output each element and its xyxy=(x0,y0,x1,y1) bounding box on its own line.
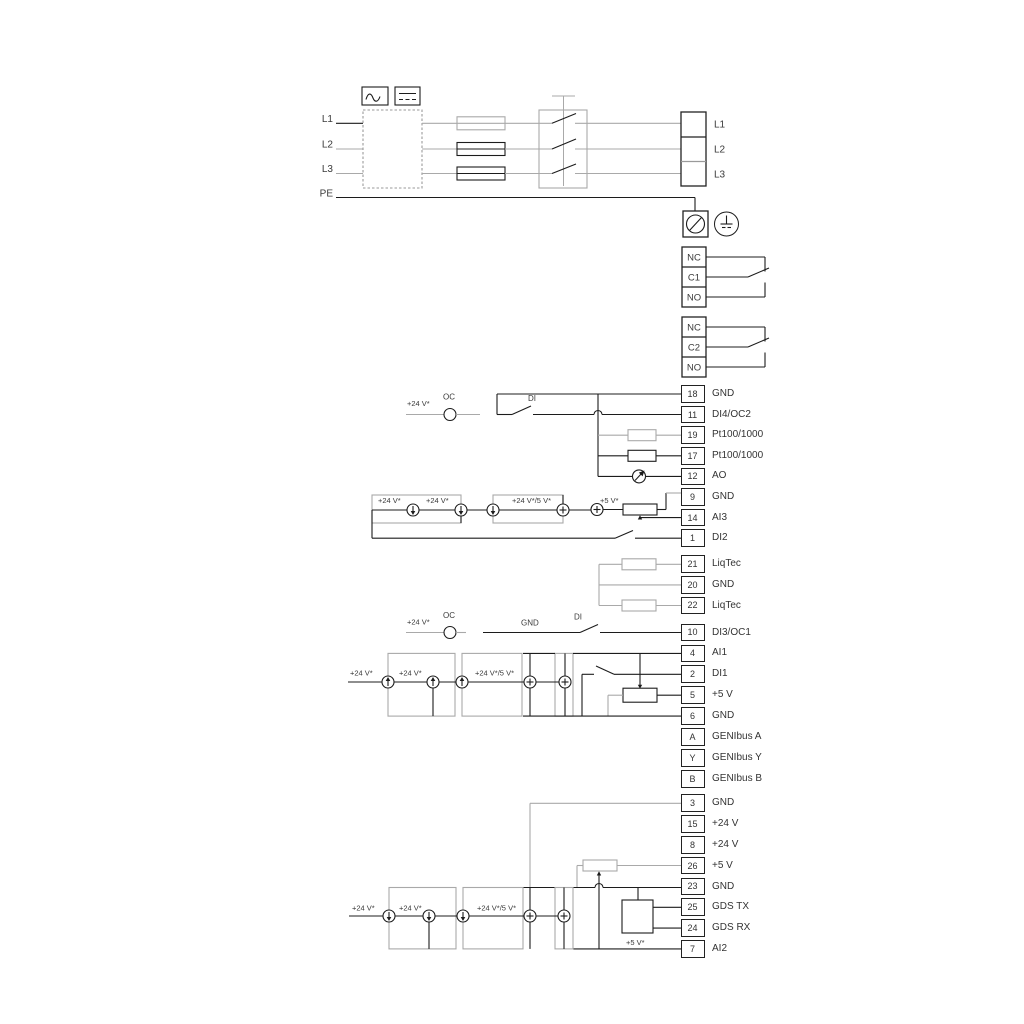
terminal-label: GND xyxy=(712,797,734,809)
terminal-cell: A xyxy=(681,728,705,746)
liqtec-sensor-symbol xyxy=(622,559,656,570)
dc-symbol-icon xyxy=(395,87,420,105)
terminal-label: LiqTec xyxy=(712,558,741,570)
fuse-symbol-l3 xyxy=(457,167,505,180)
plus24-label: +24 V* xyxy=(378,496,401,505)
gnd-label: GND xyxy=(521,619,539,628)
terminal-cell: 4 xyxy=(681,645,705,663)
plus24or5-label: +24 V*/5 V* xyxy=(512,496,551,505)
current-source-icon xyxy=(383,910,395,922)
terminal-label: AI1 xyxy=(712,647,727,659)
terminal-label: LiqTec xyxy=(712,600,741,612)
di-label: DI xyxy=(528,394,536,403)
terminal-cell: Y xyxy=(681,749,705,767)
terminal-cell: 2 xyxy=(681,665,705,683)
terminal-label: DI2 xyxy=(712,532,728,544)
relay2-nc: NC xyxy=(687,323,701,334)
terminal-number: 18 xyxy=(687,389,697,399)
terminal-cell: 15 xyxy=(681,815,705,833)
terminal-cell: B xyxy=(681,770,705,788)
terminal-label: GDS TX xyxy=(712,901,749,913)
terminal-label: Pt100/1000 xyxy=(712,429,763,441)
di1-switch-symbol xyxy=(582,666,681,716)
terminal-label: GENIbus A xyxy=(712,731,761,743)
phase-label-l1: L1 xyxy=(322,114,334,125)
plus5-label: +5 V* xyxy=(600,496,619,505)
relay1-block: NC C1 NO xyxy=(682,247,769,307)
terminal-cell: 14 xyxy=(681,509,705,527)
current-source-icon xyxy=(487,504,499,516)
plus24-label: +24 V* xyxy=(407,618,430,627)
ai2-option-boxes xyxy=(389,888,573,949)
terminal-number: 25 xyxy=(687,902,697,912)
terminal-cell: 21 xyxy=(681,555,705,573)
terminal-label: AI2 xyxy=(712,943,727,955)
terminal-cell: 20 xyxy=(681,576,705,594)
current-source-icon xyxy=(457,910,469,922)
plus24or5-label: +24 V*/5 V* xyxy=(477,904,516,913)
terminal-number: 10 xyxy=(687,627,697,637)
di4-switch-symbol xyxy=(497,406,594,415)
ai2-potentiometer-symbol xyxy=(577,860,681,949)
di-label: DI xyxy=(574,613,582,622)
terminal-number: 4 xyxy=(690,648,695,658)
terminal-number: 3 xyxy=(690,798,695,808)
terminal-label: DI1 xyxy=(712,668,728,680)
motor-terminal-block xyxy=(681,112,706,186)
plus24or5-label: +24 V*/5 V* xyxy=(475,669,514,678)
relay1-contact-symbol xyxy=(706,257,769,297)
terminal-cell: 10 xyxy=(681,624,705,642)
terminal-number: 2 xyxy=(690,669,695,679)
terminal-label: +24 V xyxy=(712,839,738,851)
terminal-number: 20 xyxy=(687,580,697,590)
terminal-number: 8 xyxy=(690,840,695,850)
voltage-source-icon xyxy=(524,676,536,688)
terminal-cell: 9 xyxy=(681,488,705,506)
terminal-number: 6 xyxy=(690,711,695,721)
current-source-icon xyxy=(423,910,435,922)
terminal-number: 9 xyxy=(690,492,695,502)
oc-label: OC xyxy=(443,611,455,620)
terminal-cell: 19 xyxy=(681,426,705,444)
terminal-cell: 7 xyxy=(681,940,705,958)
current-source-icon xyxy=(407,504,419,516)
io1-wiring: +24 V* OC DI xyxy=(372,393,681,539)
terminal-label: GDS RX xyxy=(712,922,750,934)
terminal-number: 22 xyxy=(687,600,697,610)
analog-output-meter-icon xyxy=(598,470,681,483)
plus24-label: +24 V* xyxy=(352,904,375,913)
terminal-number: 11 xyxy=(688,410,697,420)
ai1-option-boxes xyxy=(388,653,573,716)
terminal-cell: 5 xyxy=(681,686,705,704)
plus24-label: +24 V* xyxy=(350,669,373,678)
terminal-cell: 12 xyxy=(681,468,705,486)
plus5-label: +5 V* xyxy=(626,938,645,947)
oc-label: OC xyxy=(443,393,455,402)
ai1-potentiometer-symbol xyxy=(608,653,681,716)
wiring-diagram: L1 L2 L3 PE xyxy=(0,0,1024,1024)
mains-section: L1 L2 L3 PE xyxy=(320,87,739,237)
terminal-cell: 6 xyxy=(681,707,705,725)
terminal-label: +5 V xyxy=(712,860,733,872)
out-label-l2: L2 xyxy=(714,145,726,156)
terminal-label: GENIbus B xyxy=(712,773,762,785)
pe-terminal-icon xyxy=(683,211,708,237)
di3-switch-symbol xyxy=(483,625,681,633)
terminal-label: GND xyxy=(712,710,734,722)
open-collector-icon xyxy=(444,409,456,421)
terminal-label: +24 V xyxy=(712,818,738,830)
terminal-cell: 3 xyxy=(681,794,705,812)
terminal-number: 21 xyxy=(687,559,697,569)
main-switch-symbol xyxy=(539,96,587,188)
io3-wiring: +5 V* +24 V* +24 V* +24 V*/5 V* xyxy=(349,803,681,949)
relay1-nc: NC xyxy=(687,253,701,264)
phase-label-pe: PE xyxy=(320,189,334,200)
terminal-label: GND xyxy=(712,491,734,503)
terminal-cell: 22 xyxy=(681,597,705,615)
plus24-label: +24 V* xyxy=(399,904,422,913)
voltage-source-icon xyxy=(558,910,570,922)
relay2-c2: C2 xyxy=(688,343,700,354)
schematic-svg: L1 L2 L3 PE xyxy=(0,0,1024,1024)
pt100-sensor-symbol-19 xyxy=(598,430,681,441)
voltage-source-icon xyxy=(557,504,569,516)
terminal-cell: 25 xyxy=(681,898,705,916)
ac-symbol-icon xyxy=(362,87,388,105)
terminal-label: GND xyxy=(712,579,734,591)
voltage-source-icon xyxy=(524,910,536,922)
voltage-source-icon xyxy=(559,676,571,688)
out-label-l3: L3 xyxy=(714,170,726,181)
terminal-number: 1 xyxy=(690,533,695,543)
terminal-number: 17 xyxy=(687,451,697,461)
terminal-cell: 11 xyxy=(681,406,705,424)
terminal-label: Pt100/1000 xyxy=(712,450,763,462)
terminal-number: 7 xyxy=(690,944,695,954)
terminal-number: 14 xyxy=(687,513,697,523)
terminal-cell: 26 xyxy=(681,857,705,875)
terminal-cell: 17 xyxy=(681,447,705,465)
terminal-label: AI3 xyxy=(712,512,727,524)
fuse-symbol-l1 xyxy=(457,117,505,130)
plus24-label: +24 V* xyxy=(426,496,449,505)
terminal-number: 26 xyxy=(687,861,697,871)
io2-wiring: +24 V* OC GND DI +24 V* +24 V* +24 V*/5 … xyxy=(348,611,681,716)
relay1-c1: C1 xyxy=(688,273,700,284)
current-source-icon xyxy=(455,504,467,516)
terminal-cell: 8 xyxy=(681,836,705,854)
relay2-no: NO xyxy=(687,363,701,374)
relay2-contact-symbol xyxy=(706,327,769,367)
terminal-number: 15 xyxy=(687,819,697,829)
gds-sensor-box xyxy=(622,888,681,934)
terminal-label: GENIbus Y xyxy=(712,752,762,764)
plus24-label: +24 V* xyxy=(399,669,422,678)
terminal-label: AO xyxy=(712,470,726,482)
terminal-number: 24 xyxy=(687,923,697,933)
pt100-sensor-symbol-17 xyxy=(598,450,681,461)
liqtec-wiring xyxy=(599,559,681,611)
earth-ground-icon xyxy=(715,212,739,236)
voltage-source-icon xyxy=(591,504,603,516)
terminal-number: 23 xyxy=(687,881,697,891)
terminal-number: B xyxy=(689,774,695,784)
terminal-label: DI4/OC2 xyxy=(712,409,751,421)
terminal-cell: 23 xyxy=(681,878,705,896)
phase-label-l3: L3 xyxy=(322,164,334,175)
phase-label-l2: L2 xyxy=(322,140,334,151)
terminal-cell: 18 xyxy=(681,385,705,403)
relay2-block: NC C2 NO xyxy=(682,317,769,377)
converter-box xyxy=(363,110,422,188)
terminal-label: GND xyxy=(712,388,734,400)
open-collector-icon xyxy=(444,627,456,639)
fuse-symbol-l2 xyxy=(457,143,505,156)
out-label-l1: L1 xyxy=(714,120,726,131)
terminal-cell: 1 xyxy=(681,529,705,547)
terminal-label: GND xyxy=(712,881,734,893)
terminal-label: +5 V xyxy=(712,689,733,701)
terminal-number: Y xyxy=(689,753,695,763)
plus24-label: +24 V* xyxy=(407,399,430,408)
terminal-number: 12 xyxy=(687,471,697,481)
di2-switch-symbol xyxy=(372,510,681,538)
terminal-label: DI3/OC1 xyxy=(712,627,751,639)
relay1-no: NO xyxy=(687,293,701,304)
terminal-number: 5 xyxy=(690,690,695,700)
current-source-icon xyxy=(427,676,439,688)
current-source-icon xyxy=(456,676,468,688)
current-source-icon xyxy=(382,676,394,688)
terminal-cell: 24 xyxy=(681,919,705,937)
terminal-number: A xyxy=(689,732,695,742)
terminal-number: 19 xyxy=(687,430,697,440)
liqtec-sensor-symbol xyxy=(622,600,656,611)
